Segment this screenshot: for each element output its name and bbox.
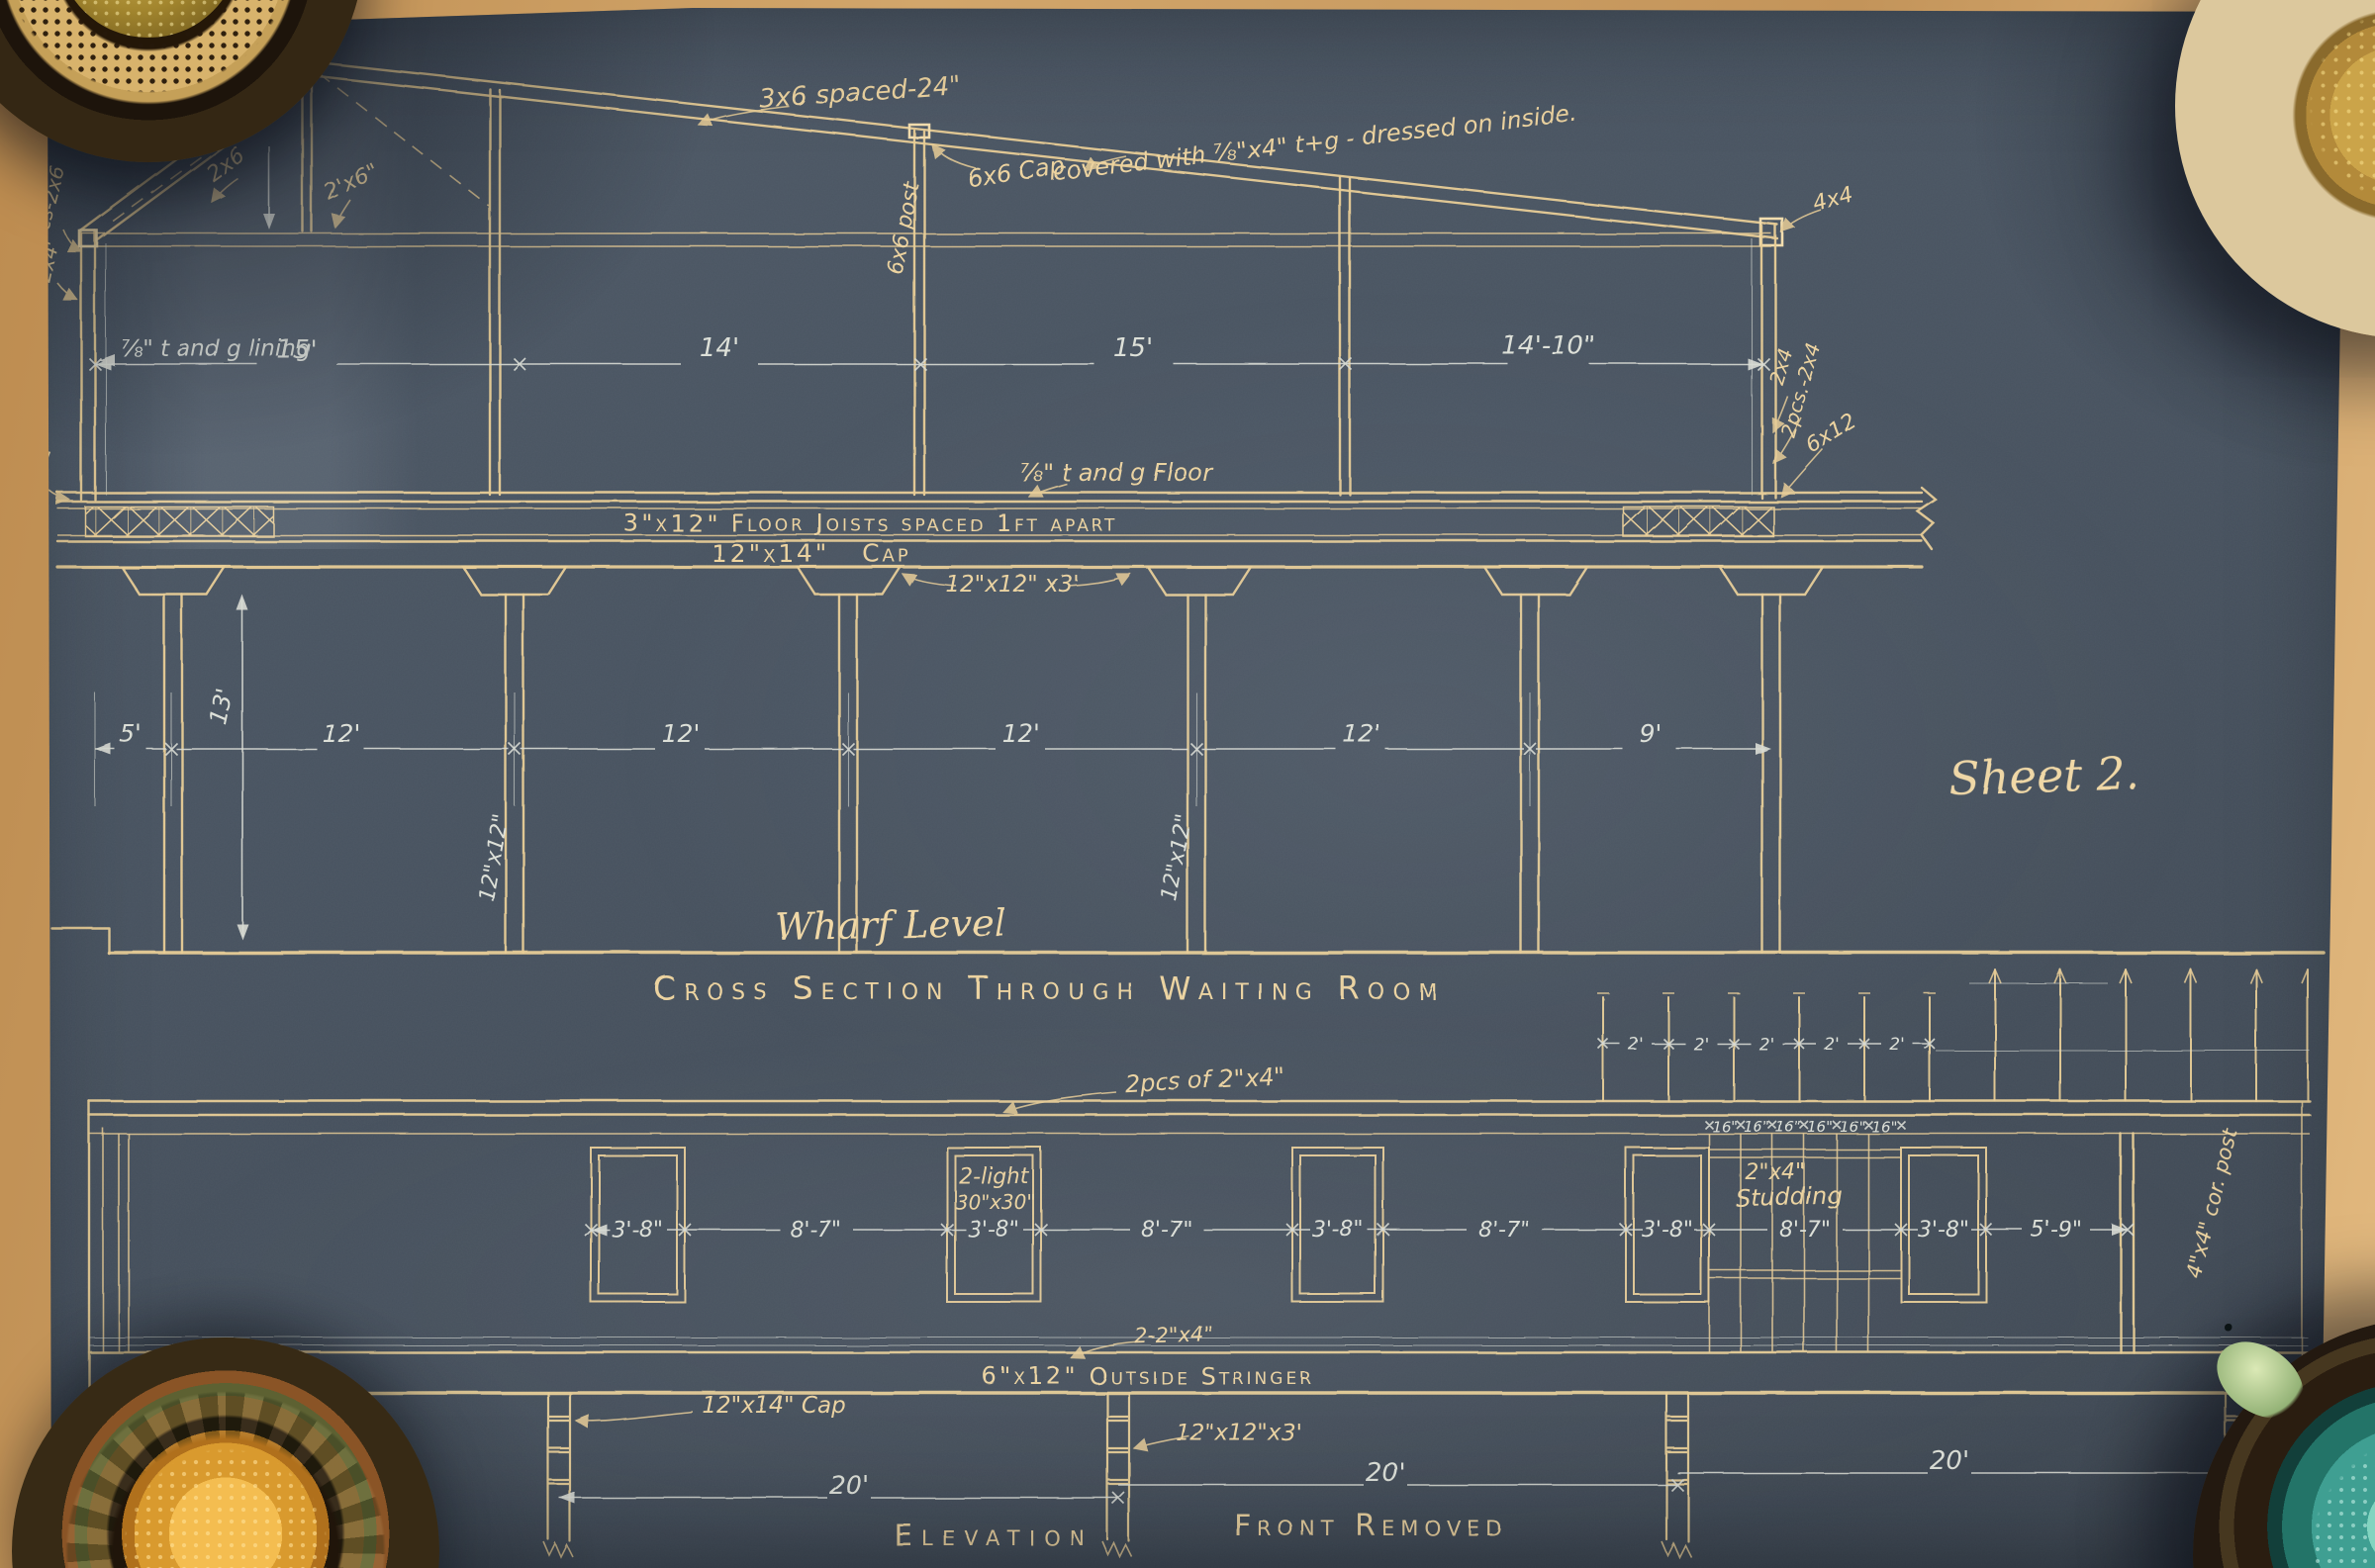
label-studding-size: 2"x4" xyxy=(1745,1160,1805,1185)
dim-stud-5: 16" xyxy=(1840,1118,1865,1136)
label-floor-cap: 12"x14" Cap xyxy=(712,539,911,568)
label-outside-stringer: 6"x12" Outside Stringer xyxy=(982,1362,1314,1390)
dim-width-5: 3'-8" xyxy=(1312,1218,1364,1243)
blueprint-paper: 3x6 spaced-24" covered with ⅞"x4" t+g - … xyxy=(0,0,2375,1568)
dim-width-1: 3'-8" xyxy=(612,1218,663,1243)
dim-width-7: 3'-8" xyxy=(1642,1218,1693,1243)
label-studding: Studding xyxy=(1736,1181,1843,1213)
dim-width-4: 8'-7" xyxy=(1141,1218,1192,1243)
label-bent-cap: 12"x14" Cap xyxy=(702,1393,845,1419)
dim-pile-3: 12' xyxy=(662,719,701,748)
dim-width-3: 3'-8" xyxy=(968,1218,1019,1243)
dim-joist-1: 2' xyxy=(1628,1035,1644,1055)
dim-stud-4: 16" xyxy=(1807,1118,1833,1136)
label-stringer-pieces: 2-2"x4" xyxy=(1134,1322,1213,1348)
dim-joist-2: 2' xyxy=(1693,1035,1709,1055)
dim-width-8: 8'-7" xyxy=(1779,1218,1831,1243)
dim-width-6: 8'-7" xyxy=(1478,1218,1530,1243)
label-wharf-level: Wharf Level xyxy=(774,901,1006,949)
dim-stud-6: 16" xyxy=(1871,1118,1897,1136)
dim-bay-1: 15' xyxy=(277,335,317,365)
title-elevation: Elevation xyxy=(894,1519,1093,1553)
dim-bay-4: 14'-10" xyxy=(1502,331,1596,361)
label-floor-joists: 3"x12" Floor Joists spaced 1ft apart xyxy=(623,509,1118,537)
dim-bay-2: 14' xyxy=(700,333,739,363)
blueprint-linework: 3x6 spaced-24" covered with ⅞"x4" t+g - … xyxy=(0,0,2375,1568)
dim-pile-4: 12' xyxy=(1002,719,1041,748)
dim-span-1: 20' xyxy=(829,1471,869,1501)
dim-joist-4: 2' xyxy=(1824,1035,1840,1055)
dim-span-3: 20' xyxy=(1930,1446,1969,1476)
label-sheet-number: Sheet 2. xyxy=(1947,746,2139,806)
dim-pile-1: 5' xyxy=(120,719,142,748)
label-corbel: 12"x12" x3' xyxy=(945,572,1079,598)
dim-joist-5: 2' xyxy=(1889,1035,1905,1055)
dim-bay-3: 15' xyxy=(1113,333,1153,363)
title-cross-section: Cross Section Through Waiting Room xyxy=(653,969,1445,1007)
dim-width-2: 8'-7" xyxy=(790,1218,841,1243)
dim-width-9: 3'-8" xyxy=(1918,1218,1969,1243)
dim-span-2: 20' xyxy=(1366,1458,1405,1488)
dim-stud-2: 16" xyxy=(1744,1118,1769,1136)
label-floor-deck: ⅞" t and g Floor xyxy=(1020,459,1214,487)
dim-stud-1: 16" xyxy=(1712,1118,1738,1136)
label-window-size: 30"x30" xyxy=(955,1190,1035,1214)
dim-joist-3: 2' xyxy=(1758,1035,1774,1055)
dim-width-10: 5'-9" xyxy=(2031,1218,2082,1243)
photo-of-blueprint: 3x6 spaced-24" covered with ⅞"x4" t+g - … xyxy=(0,0,2375,1568)
dim-pile-6: 9' xyxy=(1640,719,1662,748)
label-bent-brace: 12"x12"x3' xyxy=(1176,1421,1302,1446)
dim-pile-2: 12' xyxy=(323,719,361,748)
label-window-2light: 2-light xyxy=(959,1164,1030,1189)
title-front-removed: Front Removed xyxy=(1234,1509,1508,1543)
dim-stud-3: 16" xyxy=(1775,1118,1801,1136)
dim-pile-5: 12' xyxy=(1343,719,1381,748)
